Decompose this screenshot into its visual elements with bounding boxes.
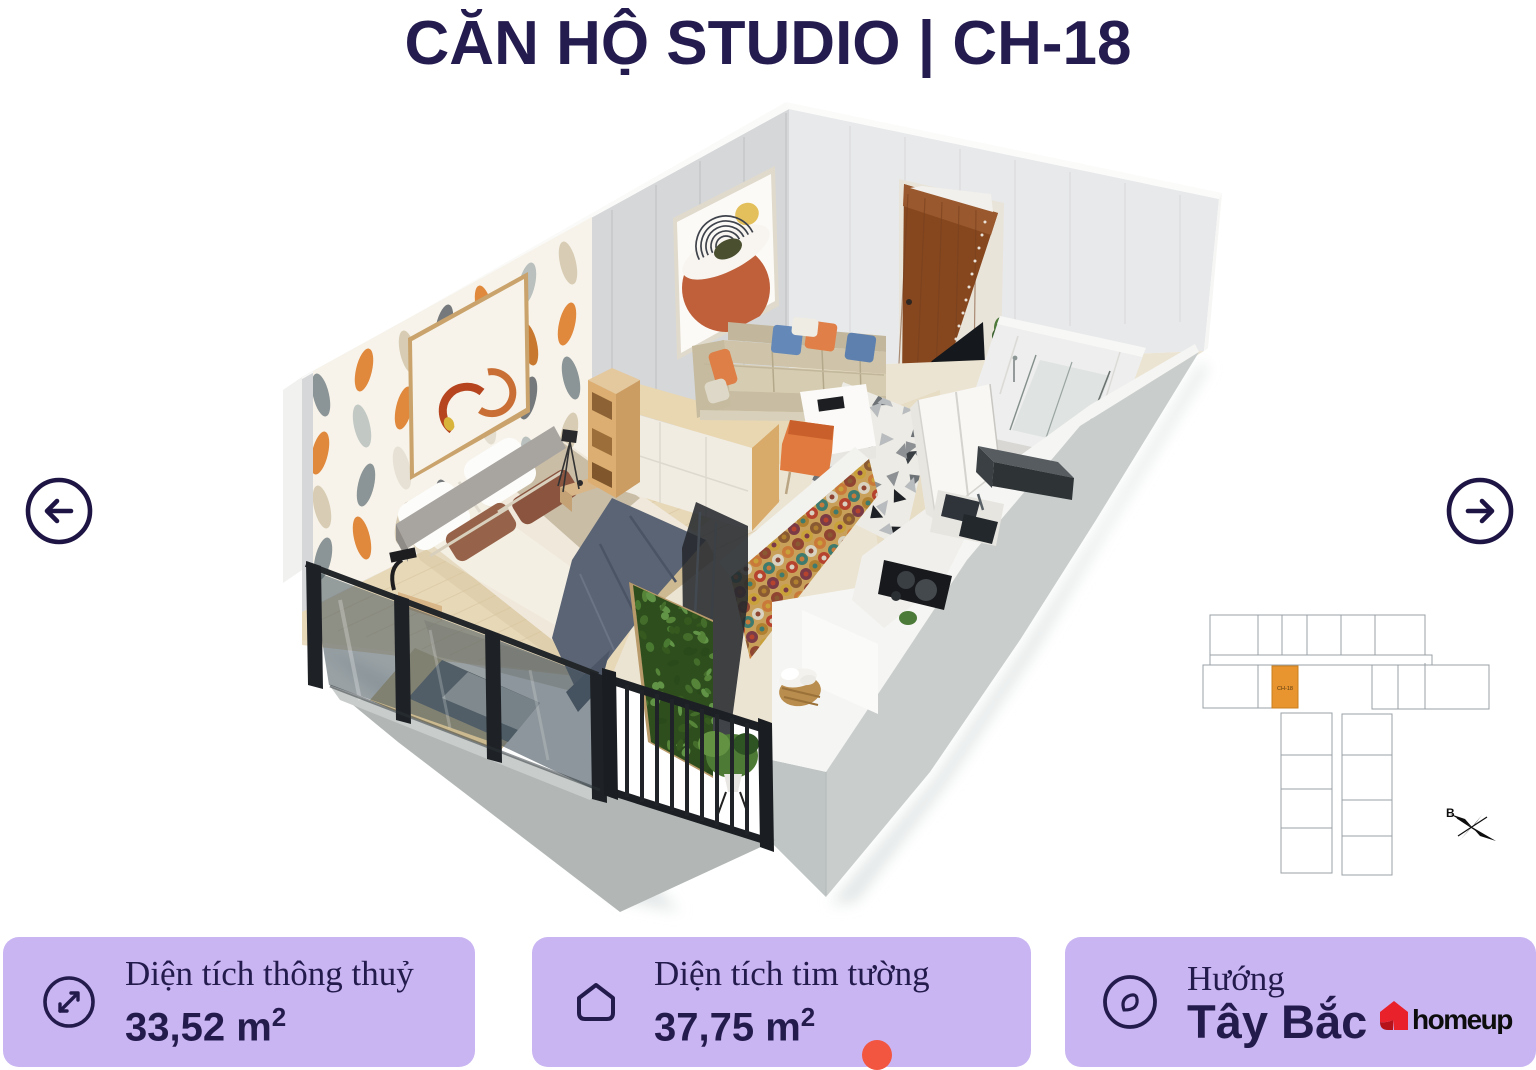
svg-text:homeup: homeup	[1412, 1004, 1512, 1034]
svg-text:CH-18: CH-18	[1277, 686, 1293, 692]
svg-text:B: B	[1446, 806, 1455, 820]
